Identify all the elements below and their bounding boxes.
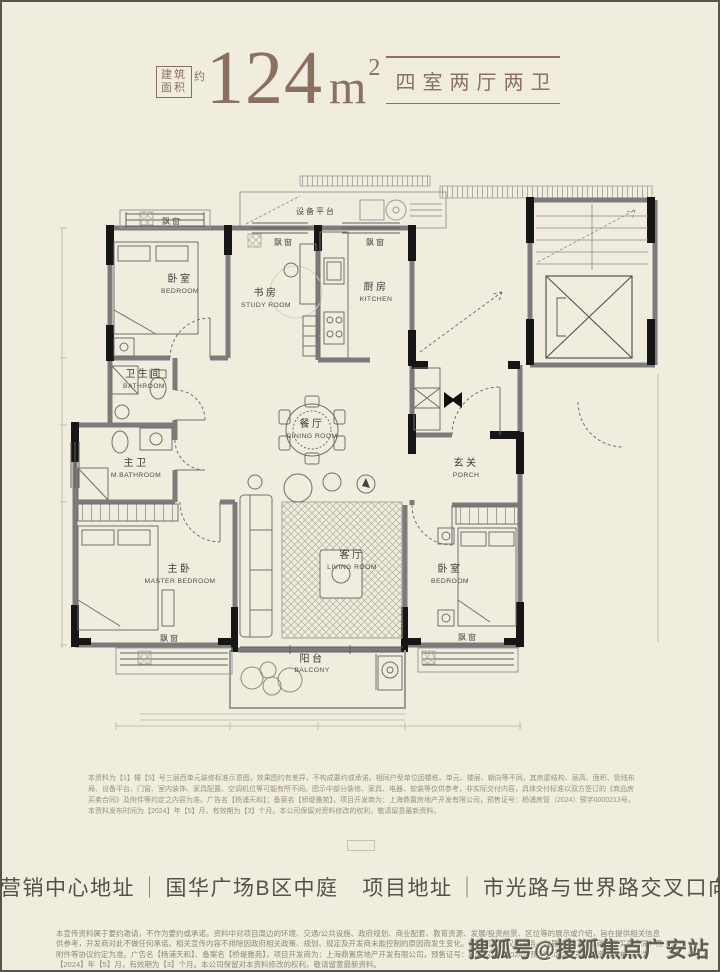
room-label-balcony-cn: 阳台 [300,652,325,665]
room-label-porch-cn: 玄关 [454,456,479,469]
window-bands [300,176,652,198]
bay-window-label-kitchen: 飘窗 [366,237,386,247]
bay-window-label-tl: 飘窗 [162,216,182,226]
room-label-bathroom-en: BATHROOM [123,383,165,390]
room-label-master-en: MASTER BEDROOM [145,578,216,585]
divider-box [347,840,375,851]
room-label-kitchen-en: KITCHEN [360,296,393,303]
layout-type-group: 四室两厅两卫 [386,56,560,104]
room-label-mbathroom-cn: 主卫 [124,457,149,469]
elevator [546,276,632,358]
room-label-balcony-en: BALCONY [294,667,329,674]
area-number: 124 [206,36,323,120]
area-approx: 约 [194,68,205,84]
room-label-bedroom-tl-en: BEDROOM [161,288,199,295]
flyer-page: { "colors": {"accent": "#8b7060", "backg… [0,0,720,972]
room-label-master-cn: 主卧 [168,562,193,575]
area-unit: m2 [329,61,381,114]
rule-bottom [386,103,560,105]
area-label-line2: 面积 [161,82,187,95]
room-label-living-cn: 客厅 [340,548,365,561]
room-label-bedroom-r-en: BEDROOM [431,578,469,585]
stairs [536,204,648,270]
room-label-porch-en: PORCH [453,472,480,479]
room-label-dining-cn: 餐厅 [300,417,325,430]
room-label-study-cn: 书房 [254,286,279,299]
room-label-bedroom-r-cn: 卧室 [438,562,463,575]
furniture [78,232,518,708]
area-label-line1: 建筑 [161,69,187,82]
bay-window-label-br: 飘窗 [458,632,478,642]
layout-type: 四室两厅两卫 [386,58,560,103]
room-label-bathroom-cn: 卫生间 [125,367,163,380]
marketing-center-value: 国华广场B区中庭 [166,877,339,900]
marketing-center-label: 营销中心地址 [0,877,135,900]
equipment-platform-label: 设备平台 [296,206,336,216]
area-label-box: 建筑 面积 [156,66,192,98]
project-address-label: 项目地址 [363,877,453,900]
bay-window-label-bl: 飘窗 [160,633,180,643]
bay-window-label-study: 飘窗 [274,237,294,247]
floor-plan: 卧室 BEDROOM 书房 STUDY ROOM 厨房 KITCHEN 卫生间 … [60,170,660,765]
room-label-bedroom-tl-cn: 卧室 [168,272,193,285]
room-label-kitchen-cn: 厨房 [364,280,389,293]
room-label-mbathroom-en: M.BATHROOM [111,472,161,479]
address-bar: 营销中心地址｜国华广场B区中庭项目地址｜市光路与世界路交叉口向西200米 [0,872,720,902]
disclaimer-top: 本资料为【1】幢【5】号三层西单元装修标准示意图，效果图约有差异，不构成要约或承… [88,773,640,817]
room-label-study-en: STUDY ROOM [241,302,291,309]
room-label-living-en: LIVING ROOM [327,564,377,571]
separator: ｜ [135,877,166,900]
area-superscript: 2 [368,55,381,81]
project-address-value: 市光路与世界路交叉口向西200米 [483,877,720,900]
separator: ｜ [453,877,484,900]
header: 建筑 面积 约 124m2 四室两厅两卫 [0,0,720,140]
area-value: 124m2 [206,28,381,128]
room-label-dining-en: DINING ROOM [286,433,337,440]
sohu-watermark: 搜狐号@搜狐焦点广安站 [469,934,710,964]
